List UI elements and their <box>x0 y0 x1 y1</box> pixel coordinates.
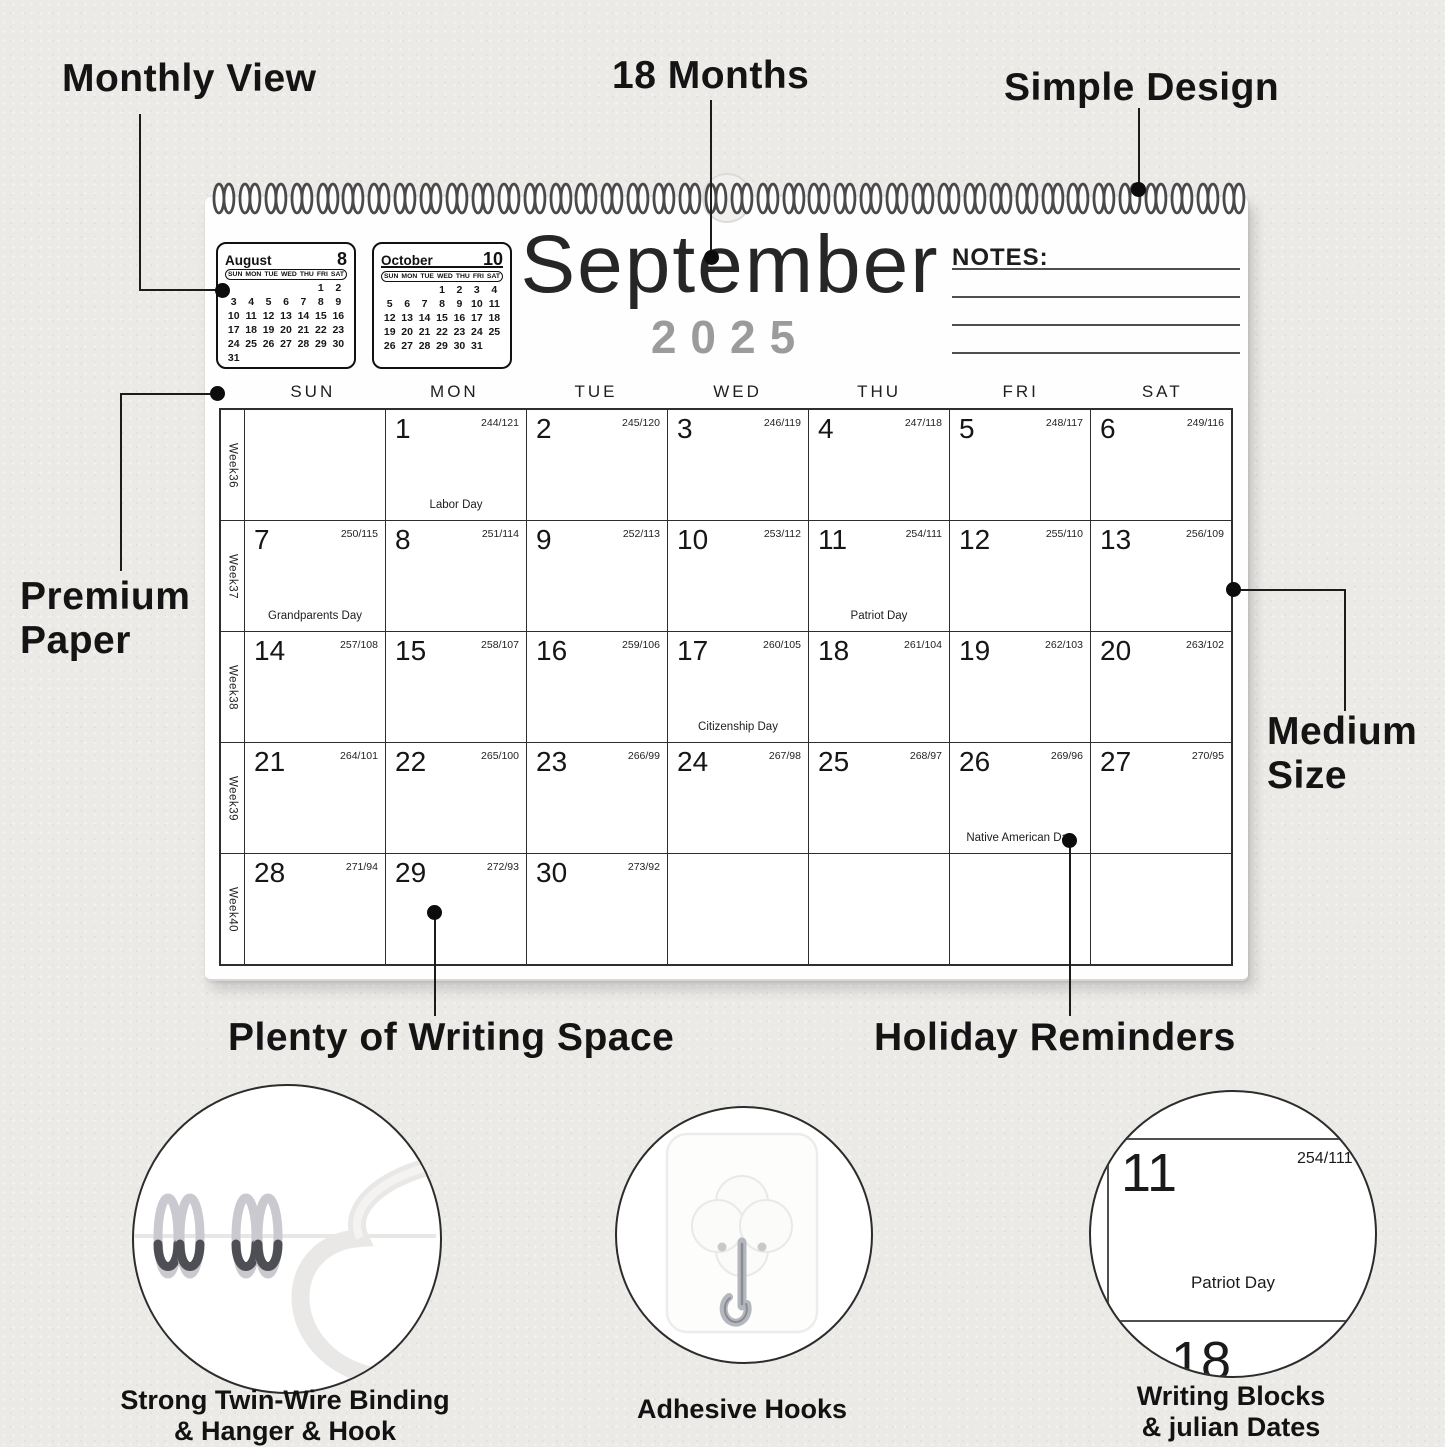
day-cell: 11254/111Patriot Day <box>808 521 949 631</box>
day-cell: 28271/94 <box>245 854 385 964</box>
julian-date: 273/92 <box>628 861 660 873</box>
year-label: 2025 <box>505 310 955 364</box>
label-medium-size-line2: Size <box>1267 754 1417 798</box>
weekday-header-row: SUNMONTUEWEDTHUFRISAT <box>219 382 1233 402</box>
julian-date: 256/109 <box>1186 528 1224 540</box>
mini-date <box>381 284 398 297</box>
mini-date <box>260 352 277 365</box>
mini-month-name: October <box>381 253 433 268</box>
label-writing-space: Plenty of Writing Space <box>228 1016 674 1060</box>
day-number: 10 <box>677 524 708 556</box>
julian-date: 268/97 <box>910 750 942 762</box>
day-cell: 16259/106 <box>526 632 667 742</box>
connector-dot <box>215 283 230 298</box>
spiral-ring-icon <box>340 180 366 217</box>
day-number: 23 <box>536 746 567 778</box>
mini-date <box>486 340 503 353</box>
mini-date: 13 <box>398 312 415 325</box>
day-cell: 15258/107 <box>385 632 526 742</box>
day-cell: 9252/113 <box>526 521 667 631</box>
day-cell: 21264/101 <box>245 743 385 853</box>
mini-date: 27 <box>277 338 294 351</box>
spiral-ring-icon <box>988 180 1014 217</box>
week-number-label: Week36 <box>221 410 245 520</box>
label-holiday-reminders: Holiday Reminders <box>874 1016 1236 1060</box>
connector-dot <box>1131 182 1146 197</box>
mini-date <box>330 352 347 365</box>
binding-detail-circle <box>132 1084 442 1394</box>
spiral-ring-icon <box>625 180 651 217</box>
weekday-header: FRI <box>950 382 1092 402</box>
spiral-ring-icon <box>729 180 755 217</box>
connector-line <box>710 100 712 256</box>
connector-line <box>1344 589 1346 711</box>
day-number: 27 <box>1100 746 1131 778</box>
spiral-ring-icon <box>289 180 315 217</box>
day-number: 17 <box>677 635 708 667</box>
connector-line <box>434 916 436 1016</box>
mini-date <box>416 284 433 297</box>
julian-date: 244/121 <box>481 417 519 429</box>
spiral-ring-icon <box>1169 180 1195 217</box>
mini-date: 1 <box>433 284 450 297</box>
mini-date: 31 <box>225 352 242 365</box>
notes-line <box>952 324 1240 326</box>
mini-weekday: WED <box>281 271 297 278</box>
connector-dot <box>704 250 719 265</box>
day-cell: 23266/99 <box>526 743 667 853</box>
adhesive-hook-circle <box>615 1106 873 1364</box>
weekday-header: WED <box>667 382 809 402</box>
mini-date: 29 <box>433 340 450 353</box>
label-premium-paper-line1: Premium <box>20 575 190 619</box>
mini-weekday: FRI <box>317 271 328 278</box>
connector-line <box>1240 589 1346 591</box>
weekday-header: TUE <box>525 382 667 402</box>
detail-day-number: 11 <box>1121 1142 1177 1204</box>
notes-line <box>952 268 1240 270</box>
weekday-header: SUN <box>242 382 384 402</box>
julian-date: 249/116 <box>1187 417 1224 429</box>
julian-date: 263/102 <box>1186 639 1224 651</box>
mini-weekday: SAT <box>487 273 500 280</box>
spiral-ring-icon <box>496 180 522 217</box>
mini-date <box>295 282 312 295</box>
mini-date: 11 <box>242 310 259 323</box>
mini-date: 25 <box>486 326 503 339</box>
mini-date: 2 <box>451 284 468 297</box>
day-number: 3 <box>677 413 693 445</box>
spiral-ring-icon <box>781 180 807 217</box>
julian-date: 251/114 <box>482 528 519 540</box>
label-18-months: 18 Months <box>612 54 809 98</box>
day-number: 9 <box>536 524 552 556</box>
mini-month-number: 10 <box>483 249 503 270</box>
mini-date <box>295 352 312 365</box>
julian-date: 258/107 <box>481 639 519 651</box>
spiral-ring-icon <box>858 180 884 217</box>
mini-date: 26 <box>260 338 277 351</box>
mini-date: 3 <box>468 284 485 297</box>
spiral-ring-icon <box>884 180 910 217</box>
label-simple-design: Simple Design <box>1004 66 1279 110</box>
julian-date: 267/98 <box>769 750 801 762</box>
julian-date: 250/115 <box>341 528 378 540</box>
day-number: 16 <box>536 635 567 667</box>
mini-date: 4 <box>486 284 503 297</box>
mini-date: 10 <box>225 310 242 323</box>
day-cell: 12255/110 <box>949 521 1090 631</box>
spiral-ring-icon <box>1091 180 1117 217</box>
day-cell: 7250/115Grandparents Day <box>245 521 385 631</box>
label-premium-paper-line2: Paper <box>20 619 190 663</box>
mini-date: 8 <box>312 296 329 309</box>
julian-date: 265/100 <box>481 750 519 762</box>
mini-date: 12 <box>381 312 398 325</box>
mini-date: 28 <box>416 340 433 353</box>
day-cell: 20263/102 <box>1090 632 1231 742</box>
day-cell: 5248/117 <box>949 410 1090 520</box>
mini-date: 10 <box>468 298 485 311</box>
mini-date: 13 <box>277 310 294 323</box>
spiral-ring-icon <box>211 180 237 217</box>
day-number: 11 <box>818 524 847 556</box>
day-cell: 22265/100 <box>385 743 526 853</box>
mini-date-grid: 1234567891011121314151617181920212223242… <box>225 282 347 365</box>
mini-weekday: SUN <box>228 271 242 278</box>
julian-date: 262/103 <box>1045 639 1083 651</box>
mini-date <box>312 352 329 365</box>
mini-calendar-october: October 10 SUNMONTUEWEDTHUFRISAT 1234567… <box>372 242 512 369</box>
mini-calendar-header: August 8 <box>225 249 347 266</box>
caption-adhesive-hooks: Adhesive Hooks <box>592 1394 892 1425</box>
spiral-ring-icon <box>1221 180 1247 217</box>
mini-date: 7 <box>416 298 433 311</box>
mini-date: 31 <box>468 340 485 353</box>
week-row: Week361244/121Labor Day2245/1203246/1194… <box>221 410 1231 520</box>
weekday-header: MON <box>384 382 526 402</box>
day-number: 12 <box>959 524 990 556</box>
spiral-ring-icon <box>315 180 341 217</box>
detail-julian-date: 254/111 <box>1297 1150 1352 1168</box>
spiral-ring-icon <box>677 180 703 217</box>
mini-date: 6 <box>398 298 415 311</box>
mini-date: 18 <box>242 324 259 337</box>
mini-date: 5 <box>381 298 398 311</box>
day-cell: 30273/92 <box>526 854 667 964</box>
mini-date: 8 <box>433 298 450 311</box>
holiday-label: Labor Day <box>386 499 526 511</box>
day-number: 18 <box>818 635 849 667</box>
day-number: 21 <box>254 746 285 778</box>
julian-date: 245/120 <box>622 417 660 429</box>
mini-date: 6 <box>277 296 294 309</box>
week-row: Week4028271/9429272/9330273/92 <box>221 853 1231 964</box>
mini-date: 12 <box>260 310 277 323</box>
connector-line <box>120 393 122 571</box>
spiral-ring-icon <box>910 180 936 217</box>
spiral-ring-icon <box>806 180 832 217</box>
connector-line <box>1138 108 1140 188</box>
calendar-grid: Week361244/121Labor Day2245/1203246/1194… <box>219 408 1233 966</box>
mini-date: 25 <box>242 338 259 351</box>
mini-month-name: August <box>225 253 272 268</box>
mini-date: 30 <box>451 340 468 353</box>
spiral-ring-icon <box>755 180 781 217</box>
weekday-header: THU <box>808 382 950 402</box>
day-number: 6 <box>1100 413 1116 445</box>
mini-date: 27 <box>398 340 415 353</box>
spiral-ring-icon <box>1014 180 1040 217</box>
connector-dot <box>427 905 442 920</box>
cell-border <box>1089 1320 1377 1322</box>
mini-weekday: SUN <box>384 273 398 280</box>
day-number: 25 <box>818 746 849 778</box>
holiday-label: Patriot Day <box>809 610 949 622</box>
day-number: 14 <box>254 635 285 667</box>
mini-date: 14 <box>416 312 433 325</box>
julian-date: 264/101 <box>340 750 378 762</box>
mini-date: 17 <box>468 312 485 325</box>
mini-date: 24 <box>468 326 485 339</box>
mini-calendar-header: October 10 <box>381 249 503 268</box>
mini-date: 20 <box>398 326 415 339</box>
connector-dot <box>210 386 225 401</box>
cell-border <box>1089 1138 1377 1140</box>
julian-date: 255/110 <box>1046 528 1083 540</box>
day-cell: 19262/103 <box>949 632 1090 742</box>
mini-date: 16 <box>451 312 468 325</box>
mini-weekday: THU <box>300 271 314 278</box>
mini-date <box>260 282 277 295</box>
mini-calendar-august: August 8 SUNMONTUEWEDTHUFRISAT 123456789… <box>216 242 356 369</box>
writing-block-detail-circle: 11 254/111 Patriot Day 18 <box>1089 1090 1377 1378</box>
day-cell: 13256/109 <box>1090 521 1231 631</box>
julian-date: 254/111 <box>906 528 942 540</box>
mini-date: 15 <box>312 310 329 323</box>
day-number: 15 <box>395 635 426 667</box>
detail-next-day-number: 18 <box>1171 1330 1231 1378</box>
mini-date: 21 <box>295 324 312 337</box>
day-number: 22 <box>395 746 426 778</box>
mini-date-grid: 1234567891011121314151617181920212223242… <box>381 284 503 353</box>
julian-date: 252/113 <box>623 528 660 540</box>
caption-binding-line2: & Hanger & Hook <box>60 1416 510 1447</box>
mini-date: 28 <box>295 338 312 351</box>
holiday-label: Citizenship Day <box>668 721 808 733</box>
day-cell: 2245/120 <box>526 410 667 520</box>
day-number: 1 <box>395 413 411 445</box>
julian-date: 247/118 <box>905 417 942 429</box>
spiral-ring-icon <box>1195 180 1221 217</box>
label-medium-size-line1: Medium <box>1267 710 1417 754</box>
mini-weekday: TUE <box>264 271 278 278</box>
mini-date: 24 <box>225 338 242 351</box>
label-monthly-view: Monthly View <box>62 57 316 101</box>
spiral-ring-icon <box>1065 180 1091 217</box>
mini-date: 29 <box>312 338 329 351</box>
spiral-ring-icon <box>1040 180 1066 217</box>
detail-holiday-label: Patriot Day <box>1091 1273 1375 1293</box>
mini-date: 14 <box>295 310 312 323</box>
spiral-ring-icon <box>470 180 496 217</box>
mini-date: 16 <box>330 310 347 323</box>
day-number: 20 <box>1100 635 1131 667</box>
mini-weekday: WED <box>437 273 453 280</box>
month-title-block: September 2025 <box>505 224 955 364</box>
day-cell <box>245 410 385 520</box>
week-row: Week3814257/10815258/10716259/10617260/1… <box>221 631 1231 742</box>
day-number: 28 <box>254 857 285 889</box>
mini-weekday: THU <box>456 273 470 280</box>
week-row: Week3921264/10122265/10023266/9924267/98… <box>221 742 1231 853</box>
mini-weekday-row: SUNMONTUEWEDTHUFRISAT <box>381 271 503 282</box>
notes-line <box>952 296 1240 298</box>
day-cell <box>1090 854 1231 964</box>
day-cell: 27270/95 <box>1090 743 1231 853</box>
julian-date: 253/112 <box>764 528 801 540</box>
mini-date: 17 <box>225 324 242 337</box>
day-cell: 25268/97 <box>808 743 949 853</box>
connector-dot <box>1062 833 1077 848</box>
mini-date: 23 <box>330 324 347 337</box>
spiral-binding <box>211 180 1247 217</box>
day-number: 26 <box>959 746 990 778</box>
day-cell: 3246/119 <box>667 410 808 520</box>
spiral-ring-icon <box>936 180 962 217</box>
connector-line <box>120 393 218 395</box>
mini-date: 22 <box>433 326 450 339</box>
holiday-label: Grandparents Day <box>245 610 385 622</box>
week-number-label: Week38 <box>221 632 245 742</box>
day-cell <box>808 854 949 964</box>
julian-date: 248/117 <box>1046 417 1083 429</box>
mini-weekday: TUE <box>420 273 434 280</box>
spiral-ring-icon <box>548 180 574 217</box>
day-number: 24 <box>677 746 708 778</box>
connector-line <box>139 289 222 291</box>
connector-dot <box>1226 582 1241 597</box>
mini-date: 19 <box>381 326 398 339</box>
mini-date: 2 <box>330 282 347 295</box>
julian-date: 257/108 <box>340 639 378 651</box>
mini-date: 23 <box>451 326 468 339</box>
connector-line <box>1069 844 1071 1016</box>
day-number: 7 <box>254 524 270 556</box>
caption-binding: Strong Twin-Wire Binding & Hanger & Hook <box>60 1385 510 1447</box>
mini-weekday-row: SUNMONTUEWEDTHUFRISAT <box>225 269 347 280</box>
mini-date <box>277 282 294 295</box>
mini-date: 26 <box>381 340 398 353</box>
spiral-ring-icon <box>703 180 729 217</box>
day-cell: 18261/104 <box>808 632 949 742</box>
day-number: 4 <box>818 413 834 445</box>
mini-weekday: FRI <box>473 273 484 280</box>
julian-date: 269/96 <box>1051 750 1083 762</box>
caption-binding-line1: Strong Twin-Wire Binding <box>60 1385 510 1416</box>
adhesive-hook-illustration <box>617 1108 867 1358</box>
spiral-ring-icon <box>599 180 625 217</box>
mini-date <box>277 352 294 365</box>
mini-date: 5 <box>260 296 277 309</box>
mini-date: 15 <box>433 312 450 325</box>
mini-date: 9 <box>451 298 468 311</box>
day-number: 13 <box>1100 524 1131 556</box>
julian-date: 246/119 <box>764 417 801 429</box>
spiral-ring-icon <box>263 180 289 217</box>
day-cell: 24267/98 <box>667 743 808 853</box>
day-number: 5 <box>959 413 975 445</box>
mini-date: 4 <box>242 296 259 309</box>
month-title: September <box>505 224 955 306</box>
julian-date: 266/99 <box>628 750 660 762</box>
twin-wire-binding-illustration <box>134 1086 436 1388</box>
spiral-ring-icon <box>962 180 988 217</box>
mini-date: 30 <box>330 338 347 351</box>
day-number: 19 <box>959 635 990 667</box>
spiral-ring-icon <box>573 180 599 217</box>
spiral-ring-icon <box>392 180 418 217</box>
spiral-ring-icon <box>1143 180 1169 217</box>
day-cell: 17260/105Citizenship Day <box>667 632 808 742</box>
notes-area: NOTES: <box>952 244 1240 272</box>
product-image: Monthly View 18 Months Simple Design Pre… <box>0 0 1445 1445</box>
julian-date: 271/94 <box>346 861 378 873</box>
spiral-ring-icon <box>832 180 858 217</box>
connector-line <box>139 114 141 290</box>
day-number: 29 <box>395 857 426 889</box>
day-cell: 10253/112 <box>667 521 808 631</box>
mini-date: 21 <box>416 326 433 339</box>
mini-weekday: MON <box>401 273 417 280</box>
day-number: 30 <box>536 857 567 889</box>
caption-writing-blocks-line1: Writing Blocks <box>1056 1381 1406 1412</box>
day-cell: 1244/121Labor Day <box>385 410 526 520</box>
caption-writing-blocks-line2: & julian Dates <box>1056 1412 1406 1443</box>
julian-date: 272/93 <box>487 861 519 873</box>
spiral-ring-icon <box>651 180 677 217</box>
mini-date: 9 <box>330 296 347 309</box>
notes-line <box>952 352 1240 354</box>
julian-date: 260/105 <box>763 639 801 651</box>
julian-date: 259/106 <box>622 639 660 651</box>
cell-border <box>1107 1138 1109 1322</box>
mini-date: 18 <box>486 312 503 325</box>
week-number-label: Week37 <box>221 521 245 631</box>
mini-date: 1 <box>312 282 329 295</box>
mini-date: 11 <box>486 298 503 311</box>
caption-adhesive-hooks-line1: Adhesive Hooks <box>592 1394 892 1425</box>
week-number-label: Week39 <box>221 743 245 853</box>
julian-date: 261/104 <box>904 639 942 651</box>
label-premium-paper: Premium Paper <box>20 575 190 663</box>
label-medium-size: Medium Size <box>1267 710 1417 798</box>
spiral-ring-icon <box>418 180 444 217</box>
mini-date <box>398 284 415 297</box>
mini-date: 7 <box>295 296 312 309</box>
week-row: Week377250/115Grandparents Day8251/11492… <box>221 520 1231 631</box>
spiral-ring-icon <box>444 180 470 217</box>
spiral-ring-icon <box>237 180 263 217</box>
day-number: 2 <box>536 413 552 445</box>
mini-date: 19 <box>260 324 277 337</box>
spiral-ring-icon <box>522 180 548 217</box>
day-cell: 14257/108 <box>245 632 385 742</box>
mini-month-number: 8 <box>337 249 347 270</box>
day-cell: 29272/93 <box>385 854 526 964</box>
julian-date: 270/95 <box>1192 750 1224 762</box>
spiral-ring-icon <box>366 180 392 217</box>
